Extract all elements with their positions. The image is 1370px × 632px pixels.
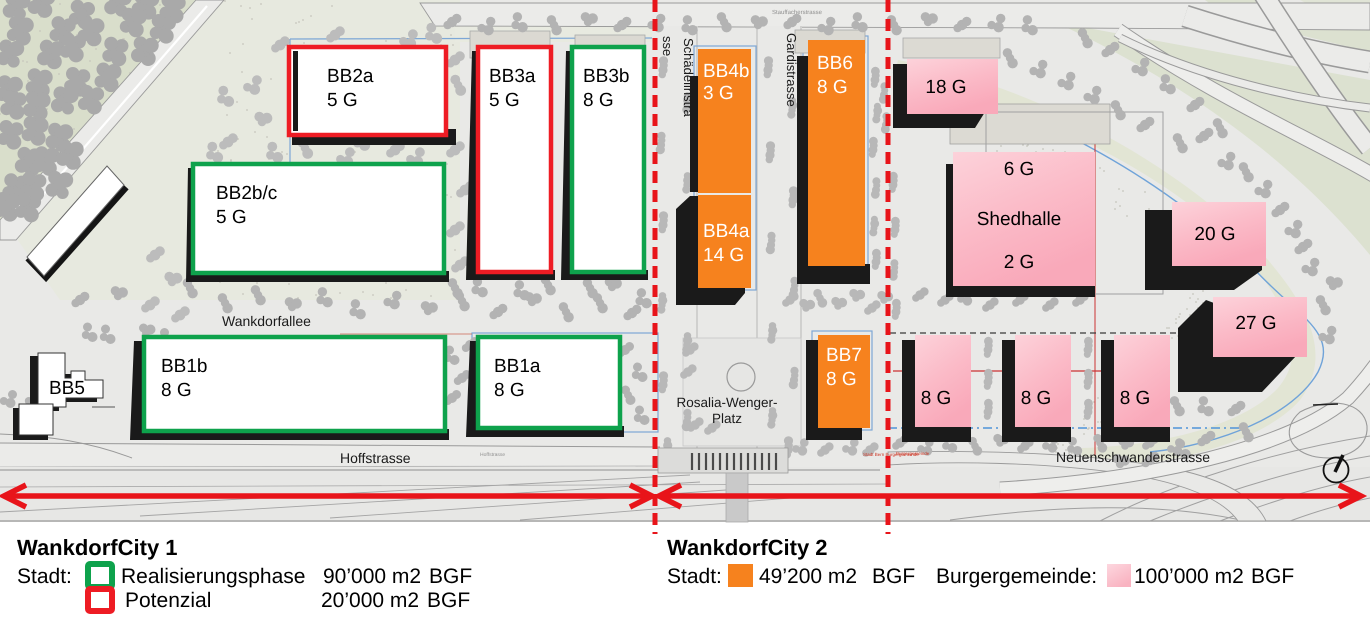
svg-text:BB6: BB6 xyxy=(817,53,853,74)
svg-text:Realisierungsphase: Realisierungsphase xyxy=(121,565,305,588)
svg-text:Stadt:: Stadt: xyxy=(17,565,72,588)
svg-text:8 G: 8 G xyxy=(817,77,848,98)
svg-text:BB3b: BB3b xyxy=(583,66,629,87)
svg-text:49’200 m2: 49’200 m2 xyxy=(759,565,857,588)
svg-text:Stadt:: Stadt: xyxy=(667,565,722,588)
svg-text:BGF: BGF xyxy=(872,565,915,588)
svg-text:BB1b: BB1b xyxy=(161,356,207,377)
svg-text:Rosalia-Wenger-: Rosalia-Wenger- xyxy=(676,395,777,410)
svg-text:BB4a: BB4a xyxy=(703,221,750,242)
svg-text:Hoffstrasse: Hoffstrasse xyxy=(480,452,505,458)
svg-text:Schädelinstra: Schädelinstra xyxy=(681,38,696,118)
svg-text:Stauffacherstrasse: Stauffacherstrasse xyxy=(772,9,823,16)
svg-text:BB2a: BB2a xyxy=(327,66,374,87)
svg-text:8 G: 8 G xyxy=(583,90,614,111)
svg-text:5 G: 5 G xyxy=(489,90,520,111)
svg-text:8 G: 8 G xyxy=(1021,388,1052,409)
svg-text:Platz: Platz xyxy=(712,411,742,426)
svg-text:8 G: 8 G xyxy=(826,369,857,390)
svg-text:BB3a: BB3a xyxy=(489,66,536,87)
svg-text:Wankdorfallee: Wankdorfallee xyxy=(222,313,311,329)
svg-text:BB1a: BB1a xyxy=(494,356,541,377)
svg-text:Shedhalle: Shedhalle xyxy=(977,209,1062,230)
svg-text:100’000 m2: 100’000 m2 xyxy=(1134,565,1244,588)
svg-text:BGF: BGF xyxy=(427,589,470,612)
svg-text:20’000 m2: 20’000 m2 xyxy=(321,589,419,612)
svg-text:WankdorfCity 1: WankdorfCity 1 xyxy=(17,535,178,560)
svg-text:BB4b: BB4b xyxy=(703,61,749,82)
svg-text:BGF: BGF xyxy=(429,565,472,588)
svg-text:27 G: 27 G xyxy=(1235,313,1276,334)
svg-text:20 G: 20 G xyxy=(1194,224,1235,245)
svg-text:90’000 m2: 90’000 m2 xyxy=(323,565,421,588)
svg-text:Hoffstrasse: Hoffstrasse xyxy=(340,450,411,466)
svg-text:BB5: BB5 xyxy=(49,378,85,399)
svg-text:BB7: BB7 xyxy=(826,345,862,366)
svg-text:5 G: 5 G xyxy=(216,207,247,228)
svg-text:8 G: 8 G xyxy=(1120,388,1151,409)
svg-text:3 G: 3 G xyxy=(703,83,734,104)
svg-text:Burgergemeinde: Burgergemeinde xyxy=(896,451,930,456)
svg-text:Gardistrasse: Gardistrasse xyxy=(784,33,799,107)
svg-text:8 G: 8 G xyxy=(921,388,952,409)
svg-text:Neuenschwanderstrasse: Neuenschwanderstrasse xyxy=(1056,449,1210,465)
svg-text:Potenzial: Potenzial xyxy=(125,589,211,612)
svg-text:BB2b/c: BB2b/c xyxy=(216,183,277,204)
svg-text:8 G: 8 G xyxy=(494,380,525,401)
svg-text:5 G: 5 G xyxy=(327,90,358,111)
svg-text:sse: sse xyxy=(660,36,675,56)
svg-text:14 G: 14 G xyxy=(703,245,744,266)
svg-text:8 G: 8 G xyxy=(161,380,192,401)
svg-text:BGF: BGF xyxy=(1251,565,1294,588)
svg-text:Burgergemeinde:: Burgergemeinde: xyxy=(936,565,1097,588)
svg-text:2 G: 2 G xyxy=(1004,252,1035,273)
svg-text:6 G: 6 G xyxy=(1004,159,1035,180)
svg-text:18 G: 18 G xyxy=(925,77,966,98)
svg-text:WankdorfCity 2: WankdorfCity 2 xyxy=(667,535,828,560)
